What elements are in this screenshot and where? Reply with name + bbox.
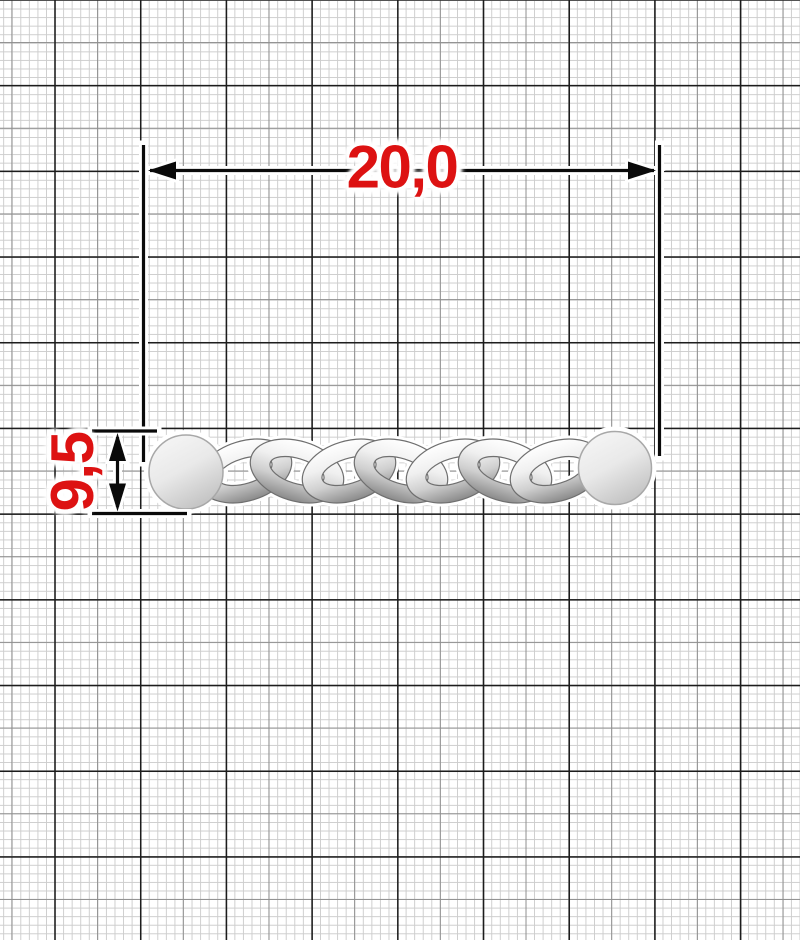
end-plate <box>149 435 223 509</box>
drawing-canvas: 20,0 9,5 <box>0 0 800 940</box>
chain-illustration <box>144 427 657 515</box>
height-dimension-label: 9,5 <box>43 433 103 512</box>
end-plate <box>579 432 652 505</box>
width-dimension-label: 20,0 <box>347 138 458 198</box>
